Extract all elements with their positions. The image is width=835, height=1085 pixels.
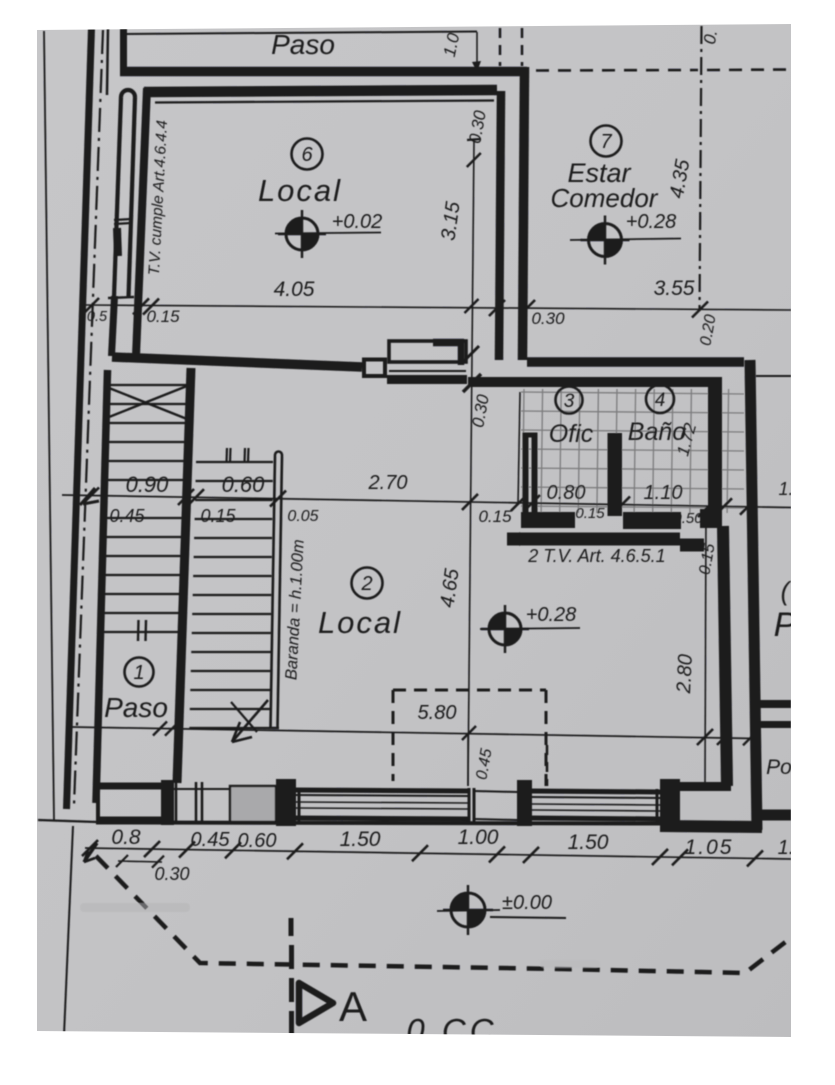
svg-text:Local: Local [258, 173, 342, 208]
svg-text:1.10: 1.10 [644, 482, 683, 504]
svg-text:0.90: 0.90 [126, 472, 170, 497]
svg-text:Paso: Paso [271, 29, 335, 60]
svg-text:7: 7 [600, 131, 612, 153]
svg-text:1.50: 1.50 [340, 828, 381, 851]
svg-text:Po: Po [766, 756, 792, 779]
svg-text:3.55: 3.55 [654, 277, 695, 300]
svg-text:0.45: 0.45 [191, 829, 231, 851]
svg-text:0.8: 0.8 [111, 826, 141, 849]
svg-text:Comedor: Comedor [551, 183, 659, 213]
svg-text:4.05: 4.05 [274, 278, 315, 301]
svg-text:0.15: 0.15 [200, 506, 236, 526]
svg-text:4: 4 [655, 390, 666, 411]
svg-text:0.15: 0.15 [575, 505, 605, 522]
svg-text:0.80: 0.80 [547, 482, 586, 504]
svg-text:1.50: 1.50 [568, 831, 609, 854]
svg-text:±0.00: ±0.00 [502, 892, 552, 914]
svg-text:2.80: 2.80 [673, 654, 697, 695]
svg-text:5.80: 5.80 [418, 702, 457, 724]
svg-text:2.70: 2.70 [368, 472, 408, 494]
svg-text:0.60: 0.60 [222, 472, 266, 497]
svg-text:0.15: 0.15 [478, 507, 512, 526]
svg-text:+0.02: +0.02 [332, 211, 383, 233]
svg-text:Local: Local [318, 605, 402, 640]
svg-text:+0.28: +0.28 [526, 604, 577, 626]
svg-text:2 T.V. Art. 4.6.5.1: 2 T.V. Art. 4.6.5.1 [527, 546, 665, 566]
svg-text:0.60: 0.60 [238, 830, 277, 852]
svg-text:A: A [339, 983, 367, 1030]
svg-text:6: 6 [301, 144, 313, 166]
svg-text:0.30: 0.30 [531, 309, 565, 328]
svg-text:1: 1 [133, 662, 144, 684]
svg-text:Paso: Paso [104, 692, 168, 723]
svg-text:3: 3 [564, 391, 575, 412]
svg-text:0.05: 0.05 [287, 508, 318, 525]
svg-text:Ofic: Ofic [549, 420, 594, 448]
svg-text:0.15: 0.15 [146, 307, 180, 326]
svg-text:0.45: 0.45 [109, 506, 145, 526]
svg-text:+0.28: +0.28 [626, 211, 677, 233]
svg-text:2: 2 [360, 573, 372, 595]
svg-text:1.00: 1.00 [458, 826, 499, 849]
svg-text:1.05: 1.05 [685, 836, 734, 859]
svg-text:0.30: 0.30 [154, 864, 189, 884]
svg-text:0.5: 0.5 [87, 309, 108, 325]
